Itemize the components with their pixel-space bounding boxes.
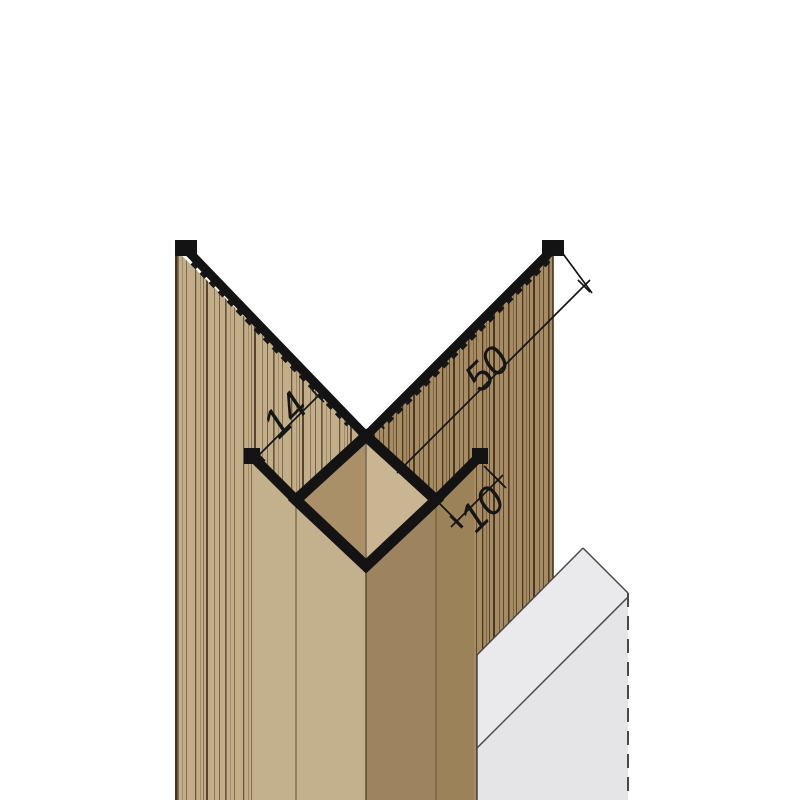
cut-edge-right-endcap: [542, 240, 564, 256]
drawing-canvas: 14 50 10: [0, 0, 800, 800]
cut-edge-left-endcap: [175, 240, 197, 256]
wing-right-endcap: [472, 448, 488, 464]
technical-drawing: 14 50 10: [0, 0, 800, 800]
left-plain-strip-outer: [254, 458, 296, 800]
